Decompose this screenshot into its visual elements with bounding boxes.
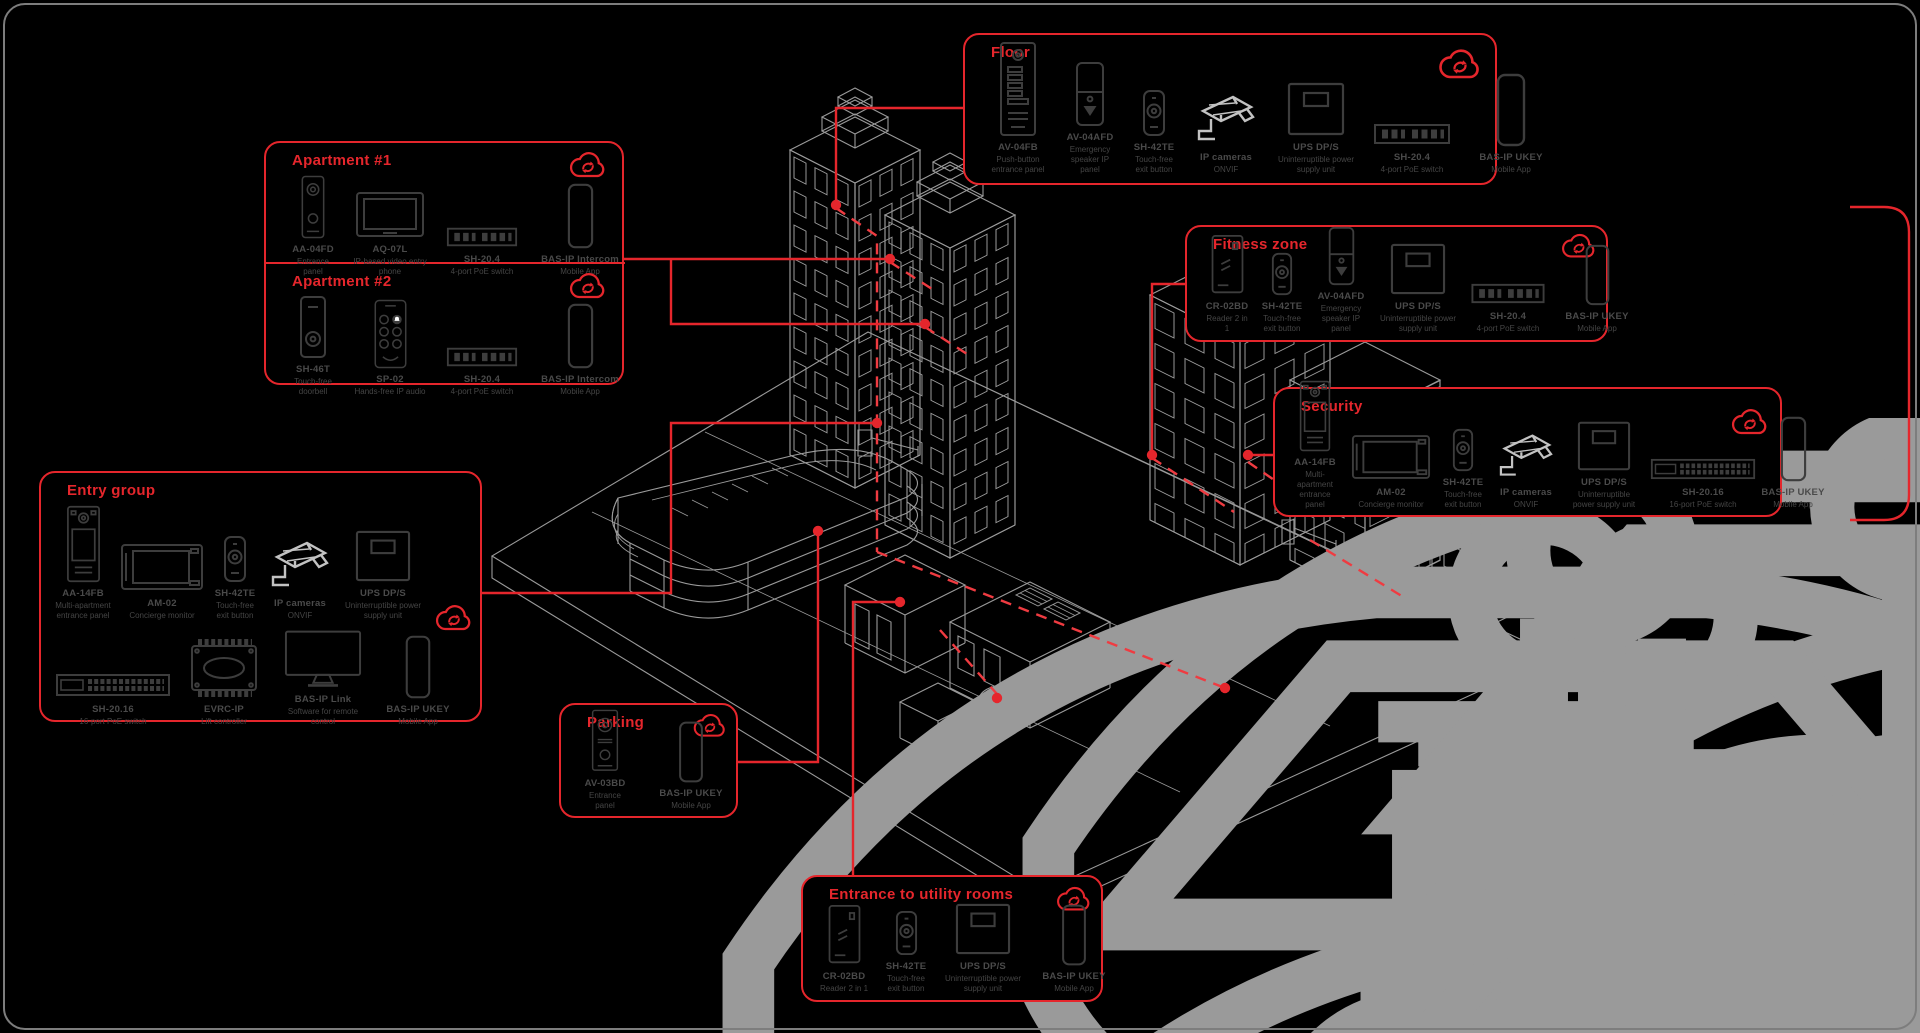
device-switch-16port: SH-20.1616-port PoE switch [1649, 410, 1757, 510]
device-ukey-app: BAS-IP UKEYMobile App [1467, 49, 1555, 175]
reader-icon [1209, 234, 1246, 296]
device-ups: UPS DP/SUninterruptible power supply uni… [1275, 39, 1357, 175]
device-aa-14fb: AA-14FBMulti-apartment entrance panel [1289, 380, 1341, 510]
ups-icon [354, 529, 412, 583]
panel-security: Security AA-14FBMulti-apartment entrance… [1273, 387, 1782, 517]
device-ukey-app: BAS-IP UKEYMobile App [1765, 410, 1821, 510]
device-switch-4port: SH-20.44-port PoE switch [442, 183, 522, 277]
reader-icon [826, 904, 863, 966]
speaker-panel-icon [1073, 61, 1107, 127]
device-ip-camera: IP camerasONVIF [1190, 49, 1262, 175]
device-ukey-app: BAS-IP UKEYMobile App [383, 641, 453, 727]
device-ip-camera: IP camerasONVIF [1493, 410, 1559, 510]
ups-icon [954, 902, 1012, 956]
cctv-camera-icon [1495, 430, 1557, 482]
cctv-camera-icon [1193, 91, 1259, 147]
smartphone-icon [1496, 73, 1526, 147]
device-av-04afd: AV-04AFDEmergency speaker IP panel [1062, 29, 1118, 175]
device-am-02: AM-02Concierge monitor [1349, 410, 1433, 510]
device-sh-46t: SH-46TTouch-free doorbell [288, 293, 338, 397]
device-aa-14fb: AA-14FBMulti-apartment entrance panel [55, 505, 111, 621]
device-cr-02bd: CR-02BDReader 2 in 1 [819, 904, 869, 994]
solution-diagram-canvas: Floor AV-04FBPush-button entrance panel … [0, 0, 1920, 1033]
device-ups: UPS DP/SUninterruptible power supply uni… [943, 894, 1023, 994]
indoor-monitor-icon [355, 191, 425, 239]
multi-button-panel-icon [998, 41, 1038, 137]
cctv-camera-icon [267, 537, 333, 593]
device-sh-42te: SH-42TETouch-free exit button [1260, 234, 1304, 334]
smartphone-icon [567, 183, 594, 249]
device-sh-42te: SH-42TETouch-free exit button [1441, 400, 1485, 510]
lift-controller-icon [188, 637, 260, 699]
device-aa-04fd: AA-04FDEntrance panel [288, 173, 338, 277]
panel-title: Apartment #2 [292, 273, 391, 290]
device-ups: UPS DP/SUninterruptible power supply uni… [1378, 234, 1458, 334]
ups-icon [1286, 81, 1346, 137]
device-sh-42te: SH-42TETouch-free exit button [1131, 39, 1177, 175]
panel-apartments: Apartment #1 AA-04FDEntrance panel AQ-07… [264, 141, 624, 385]
device-ukey-app: BAS-IP UKEYMobile App [655, 719, 727, 811]
device-bas-ip-link: BAS-IP LinkSoftware for remote control [275, 631, 371, 727]
ups-icon [1576, 420, 1632, 472]
smartphone-icon [1585, 244, 1610, 306]
device-switch-4port: SH-20.44-port PoE switch [1370, 49, 1454, 175]
device-switch-16port: SH-20.1616-port PoE switch [53, 641, 173, 727]
device-am-02: AM-02Concierge monitor [119, 515, 205, 621]
panel-entry-group: Entry group AA-14FBMulti-apartment entra… [39, 471, 482, 722]
device-av-04afd: AV-04AFDEmergency speaker IP panel [1313, 224, 1369, 334]
poe-switch-icon [1470, 281, 1546, 306]
parking-panel-icon [589, 709, 621, 773]
panel-utility-rooms: Entrance to utility rooms CR-02BDReader … [801, 875, 1103, 1002]
device-aq-07l: AQ-07LIP-based video entry phone [352, 173, 428, 277]
device-switch-4port: SH-20.44-port PoE switch [1467, 244, 1549, 334]
ups-icon [1389, 242, 1447, 296]
device-sh-42te: SH-42TETouch-free exit button [883, 894, 929, 994]
device-intercom-app: BAS-IP IntercomMobile App [536, 183, 624, 277]
device-intercom-app: BAS-IP IntercomMobile App [536, 303, 624, 397]
smartphone-icon [678, 721, 704, 783]
device-ukey-app: BAS-IP UKEYMobile App [1037, 904, 1111, 994]
device-switch-4port: SH-20.44-port PoE switch [442, 303, 522, 397]
device-ukey-app: BAS-IP UKEYMobile App [1558, 244, 1636, 334]
panel-title: Apartment #1 [292, 152, 391, 169]
panel-parking: Parking AV-03BDEntrance panel BAS-IP UKE… [559, 703, 738, 818]
exit-button-icon [894, 910, 919, 956]
desktop-software-icon [282, 629, 364, 689]
smartphone-icon [567, 303, 594, 369]
poe-switch-icon [446, 345, 518, 369]
poe-switch-icon [1650, 456, 1756, 482]
smartphone-icon [1780, 416, 1807, 482]
tall-panel-icon [1298, 380, 1332, 452]
device-ups: UPS DP/SUninterruptible power supply uni… [343, 505, 423, 621]
device-evrc-ip: EVRC-IPLift controller [185, 641, 263, 727]
doorbell-icon [297, 295, 329, 359]
smartphone-icon [1061, 904, 1087, 966]
panel-title: Entry group [67, 482, 155, 499]
speaker-panel-icon [1326, 226, 1357, 286]
device-cr-02bd: CR-02BDReader 2 in 1 [1203, 234, 1251, 334]
device-sh-42te: SH-42TETouch-free exit button [213, 505, 257, 621]
smartphone-icon [405, 635, 431, 699]
device-ip-camera: IP camerasONVIF [265, 515, 335, 621]
concierge-monitor-icon [120, 541, 204, 593]
exit-button-icon [1141, 89, 1167, 137]
device-av-03bd: AV-03BDEntrance panel [579, 709, 631, 811]
panel-floor: Floor AV-04FBPush-button entrance panel … [963, 33, 1497, 185]
panel-fitness-zone: Fitness zone CR-02BDReader 2 in 1 SH-42T… [1185, 225, 1608, 342]
audio-keypad-icon [373, 299, 408, 369]
concierge-monitor-icon [1351, 432, 1431, 482]
exit-button-icon [222, 535, 248, 583]
exit-button-icon [1451, 428, 1475, 472]
tall-panel-icon [65, 505, 102, 583]
device-av-04fb: AV-04FBPush-button entrance panel [987, 39, 1049, 175]
poe-switch-icon [1373, 121, 1451, 147]
poe-switch-icon [55, 671, 171, 699]
device-ups: UPS DP/SUninterruptible power supply uni… [1567, 400, 1641, 510]
device-sp-02: SP-02Hands-free IP audio [352, 299, 428, 397]
door-panel-icon [298, 175, 328, 239]
exit-button-icon [1270, 252, 1294, 296]
poe-switch-icon [446, 225, 518, 249]
